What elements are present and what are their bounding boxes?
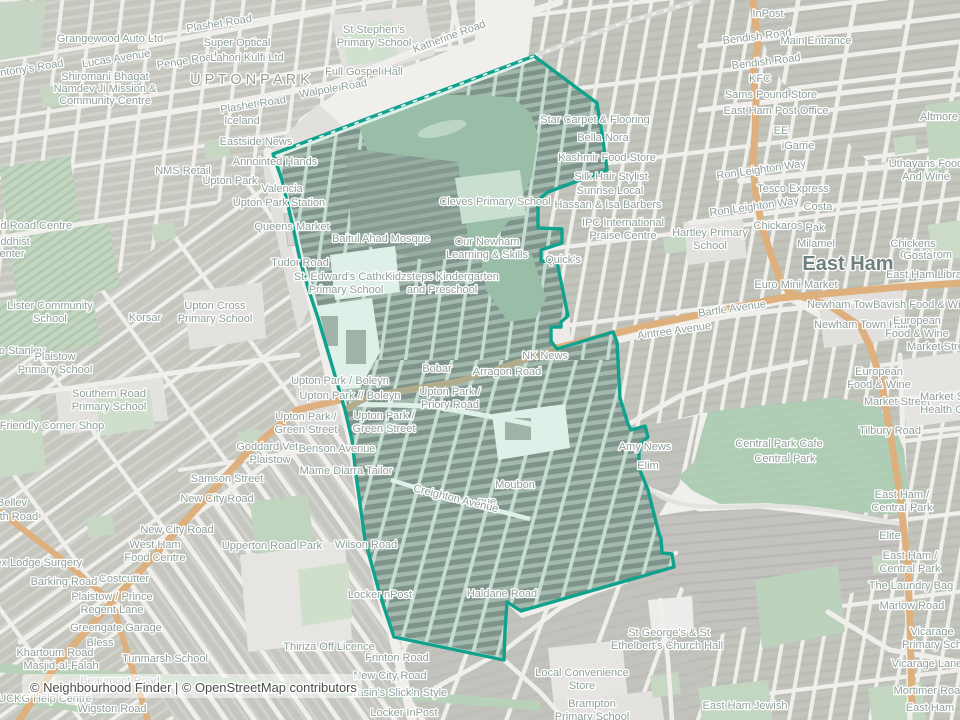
svg-text:Costcutter: Costcutter	[99, 573, 149, 585]
svg-text:Hartley Primary: Hartley Primary	[672, 227, 748, 239]
svg-text:Lahori Kulfi Ltd: Lahori Kulfi Ltd	[210, 52, 283, 64]
svg-text:Community Centre: Community Centre	[59, 95, 151, 107]
svg-text:enter: enter	[0, 248, 25, 260]
svg-text:Gosta: Gosta	[903, 250, 933, 262]
svg-text:Bella Nora: Bella Nora	[577, 132, 629, 144]
svg-text:Lister Community: Lister Community	[7, 300, 93, 312]
svg-text:Tudor Road: Tudor Road	[271, 257, 329, 269]
svg-text:New City Road: New City Road	[140, 524, 213, 536]
svg-text:Vicarage Lane: Vicarage Lane	[892, 658, 960, 670]
svg-text:NK News: NK News	[522, 350, 568, 362]
svg-text:Brampton: Brampton	[568, 698, 616, 710]
svg-text:School: School	[33, 313, 67, 325]
svg-text:Central Park: Central Park	[871, 502, 933, 514]
svg-text:Learning & Skills: Learning & Skills	[446, 249, 528, 261]
svg-text:Thiriza Off Licence: Thiriza Off Licence	[283, 641, 375, 653]
svg-text:Pak: Pak	[806, 222, 825, 234]
svg-text:Goddard Vets: Goddard Vets	[236, 441, 304, 453]
svg-text:Kidzsteps Kindergarten: Kidzsteps Kindergarten	[385, 271, 499, 283]
svg-text:U P T O N P A R K: U P T O N P A R K	[190, 72, 310, 88]
svg-text:Upperton Road Park: Upperton Road Park	[222, 540, 323, 552]
svg-text:Green Street: Green Street	[275, 424, 338, 436]
svg-text:Plaistow: Plaistow	[35, 351, 76, 363]
svg-text:East Ham: East Ham	[906, 702, 954, 714]
svg-text:Amy News: Amy News	[619, 441, 672, 453]
svg-text:East Ham Post Office: East Ham Post Office	[724, 105, 829, 117]
svg-text:Yasin's Slick'n Style: Yasin's Slick'n Style	[351, 687, 447, 699]
svg-text:The Laundry Bag: The Laundry Bag	[869, 580, 953, 592]
svg-text:Kashmir Food Store: Kashmir Food Store	[558, 152, 656, 164]
svg-text:Quick's: Quick's	[545, 254, 581, 266]
svg-text:Regent Lane: Regent Lane	[81, 604, 144, 616]
svg-text:St Stephen's: St Stephen's	[343, 24, 406, 36]
svg-text:old Road Centre: old Road Centre	[0, 220, 72, 232]
svg-text:Star Carpet & Flooring: Star Carpet & Flooring	[540, 114, 649, 126]
svg-text:Primary School: Primary School	[309, 284, 384, 296]
svg-text:Silk Hair Stylist: Silk Hair Stylist	[574, 171, 647, 183]
svg-text:Marlow Road: Marlow Road	[880, 600, 945, 612]
svg-text:Super Optical: Super Optical	[204, 37, 271, 49]
svg-text:Mortimer Road: Mortimer Road	[894, 685, 960, 697]
svg-text:Primary School: Primary School	[18, 364, 93, 376]
svg-text:Southern Road: Southern Road	[72, 388, 146, 400]
svg-text:Tesco Express: Tesco Express	[757, 183, 829, 195]
svg-text:Baitul Ahad Mosque: Baitul Ahad Mosque	[332, 233, 430, 245]
svg-text:Uthayans Food: Uthayans Food	[889, 158, 960, 170]
svg-text:Shiromani Bhagat: Shiromani Bhagat	[61, 71, 148, 83]
svg-text:Wigston Road: Wigston Road	[77, 703, 146, 715]
svg-text:Mame Diarra Tailor: Mame Diarra Tailor	[300, 465, 393, 477]
svg-text:Primary School: Primary School	[555, 711, 630, 720]
svg-text:And Wine: And Wine	[902, 171, 950, 183]
svg-text:Central Park Cafe: Central Park Cafe	[735, 438, 822, 450]
svg-text:© Neighbourhood Finder | © Ope: © Neighbourhood Finder | © OpenStreetMap…	[30, 680, 357, 695]
svg-text:Vicarage: Vicarage	[910, 626, 953, 638]
svg-text:East Ham: East Ham	[802, 253, 893, 275]
svg-text:Primary School: Primary School	[72, 401, 147, 413]
svg-text:Green Street: Green Street	[353, 423, 416, 435]
svg-text:Cleves Primary School: Cleves Primary School	[439, 196, 550, 208]
svg-text:Full Gospel Hall: Full Gospel Hall	[325, 66, 403, 78]
svg-text:rth Road: rth Road	[0, 511, 38, 523]
svg-text:Queens Market: Queens Market	[254, 221, 329, 233]
svg-text:Primary School: Primary School	[178, 313, 253, 325]
svg-text:Samson Street: Samson Street	[191, 473, 264, 485]
svg-text:Valencia: Valencia	[261, 183, 303, 195]
svg-text:European: European	[893, 315, 941, 327]
svg-text:Wilson Road: Wilson Road	[335, 539, 397, 551]
svg-text:Costa: Costa	[804, 201, 834, 213]
svg-text:Grangewood Auto Ltd: Grangewood Auto Ltd	[57, 33, 163, 45]
svg-text:Iceland: Iceland	[224, 115, 259, 127]
svg-text:Primary Sch: Primary Sch	[902, 639, 960, 651]
svg-text:Namdev Ji Mission &: Namdev Ji Mission &	[54, 83, 157, 95]
svg-text:Ethelbert's Church Hall: Ethelbert's Church Hall	[611, 640, 723, 652]
svg-text:East Ham Libra: East Ham Libra	[886, 269, 960, 281]
svg-text:uddhist: uddhist	[0, 236, 30, 248]
svg-text:Locker InPost: Locker InPost	[370, 707, 437, 719]
svg-text:Benson Avenue: Benson Avenue	[299, 443, 376, 455]
svg-text:Friendly Corner Shop: Friendly Corner Shop	[0, 420, 104, 432]
svg-text:Food & Wine: Food & Wine	[885, 328, 949, 340]
svg-text:Bavish Food & Wine: Bavish Food & Wine	[873, 299, 960, 311]
svg-text:School: School	[693, 240, 727, 252]
svg-text:Upton Park // Boleyn: Upton Park // Boleyn	[300, 390, 401, 402]
svg-text:Central Park: Central Park	[879, 563, 941, 575]
svg-text:IPC International: IPC International	[582, 217, 664, 229]
svg-text:East Ham /: East Ham /	[883, 550, 938, 562]
svg-text:Locker nPost: Locker nPost	[348, 589, 412, 601]
svg-text:Food Centre: Food Centre	[124, 552, 185, 564]
svg-text:Priory Road: Priory Road	[421, 399, 479, 411]
svg-text:Our Newham: Our Newham	[455, 236, 520, 248]
svg-text:Primary School: Primary School	[337, 37, 412, 49]
svg-text:Upton Park /: Upton Park /	[353, 410, 415, 422]
svg-text:Market S: Market S	[920, 391, 960, 403]
svg-text:Food & Wine: Food & Wine	[847, 379, 911, 391]
svg-text:Bellev: Bellev	[0, 497, 27, 509]
svg-text:New City Road: New City Road	[180, 493, 253, 505]
svg-text:Moubon: Moubon	[495, 479, 535, 491]
svg-text:East Ham /: East Ham /	[875, 489, 930, 501]
svg-text:Altmore: Altmore	[920, 111, 958, 123]
svg-text:Arragon Road: Arragon Road	[473, 366, 542, 378]
svg-text:sex Lodge Surgery: sex Lodge Surgery	[0, 557, 83, 569]
svg-text:Market Street: Market Street	[907, 341, 960, 353]
svg-text:Tunmarsh School: Tunmarsh School	[122, 653, 208, 665]
svg-text:Barking Road: Barking Road	[31, 576, 98, 588]
svg-text:St George's & St: St George's & St	[628, 627, 710, 639]
svg-text:Frinton Road: Frinton Road	[365, 652, 429, 664]
svg-text:Upton Park: Upton Park	[202, 175, 258, 187]
svg-text:Upton Cross: Upton Cross	[184, 300, 246, 312]
svg-text:Elite: Elite	[879, 530, 900, 542]
svg-text:Masjid-al-Falah: Masjid-al-Falah	[23, 660, 98, 672]
svg-text:Greengate Garage: Greengate Garage	[70, 622, 162, 634]
svg-text:Sunrise Local: Sunrise Local	[577, 185, 644, 197]
svg-text:Elim: Elim	[637, 460, 658, 472]
svg-text:Hassan & Isa Barbers: Hassan & Isa Barbers	[555, 199, 662, 211]
svg-text:New City Road: New City Road	[353, 670, 426, 682]
svg-text:West Ham: West Ham	[129, 539, 180, 551]
svg-text:Main Entrance: Main Entrance	[781, 35, 852, 47]
svg-text:iGame: iGame	[782, 140, 814, 152]
svg-text:Plaistow / Prince: Plaistow / Prince	[71, 591, 152, 603]
svg-text:Upton Park Station: Upton Park Station	[233, 197, 325, 209]
svg-text:St. Edward's Catholic: St. Edward's Catholic	[294, 271, 399, 283]
svg-text:East Ham Jewish: East Ham Jewish	[703, 700, 788, 712]
svg-text:Central Park: Central Park	[754, 453, 816, 465]
svg-text:Euro Mini Market: Euro Mini Market	[754, 279, 837, 291]
svg-text:Bobar: Bobar	[422, 363, 452, 375]
svg-text:EE: EE	[774, 125, 789, 137]
svg-text:Plaistow: Plaistow	[250, 454, 291, 466]
svg-text:Tilbury Road: Tilbury Road	[859, 425, 921, 437]
svg-text:European: European	[855, 366, 903, 378]
svg-text:KFC: KFC	[749, 73, 771, 85]
svg-text:Upton Park /: Upton Park /	[419, 386, 481, 398]
svg-text:Annointed Hands: Annointed Hands	[233, 156, 318, 168]
svg-text:Upton Park / Boleyn: Upton Park / Boleyn	[291, 375, 389, 387]
svg-text:Local Convenience: Local Convenience	[535, 667, 629, 679]
svg-text:and Preschool: and Preschool	[407, 284, 477, 296]
svg-text:Khartoum Road: Khartoum Road	[16, 647, 93, 659]
svg-text:Chickens: Chickens	[890, 238, 936, 250]
svg-text:Praise Centre: Praise Centre	[589, 230, 656, 242]
svg-text:Haldane Road: Haldane Road	[467, 588, 537, 600]
svg-text:Chickaros: Chickaros	[754, 220, 803, 232]
svg-text:Korsar: Korsar	[129, 312, 162, 324]
svg-text:Eastside News: Eastside News	[220, 136, 293, 148]
svg-text:Store: Store	[569, 680, 595, 692]
svg-text:Milamel: Milamel	[797, 238, 835, 250]
svg-text:Upton Park /: Upton Park /	[275, 411, 337, 423]
svg-text:Health G: Health G	[920, 404, 960, 416]
svg-text:Sams Pound Store: Sams Pound Store	[725, 89, 817, 101]
svg-text:InPost: InPost	[752, 8, 783, 20]
